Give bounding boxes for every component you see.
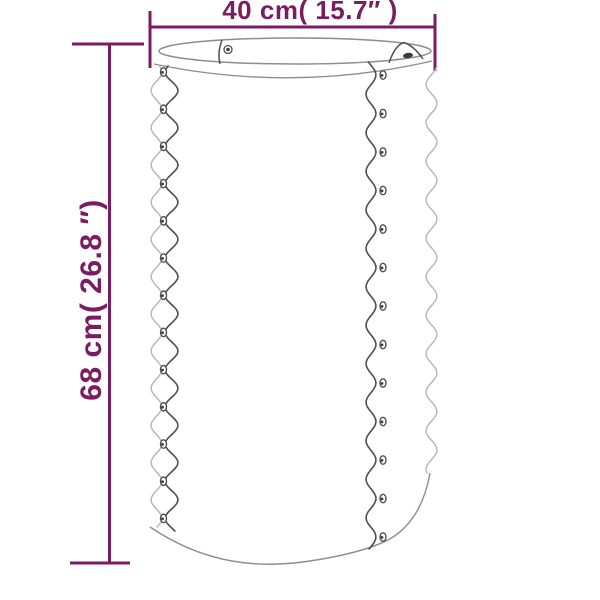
width-dimension-label: 40 cm( 15.7″ ) [222, 0, 398, 26]
left-seam-rivet-center [161, 406, 164, 409]
dimension-diagram: 40 cm( 15.7″ ) 68 cm( 26.8 ″) [0, 0, 600, 600]
left-seam-corrugation [165, 66, 178, 531]
right-seam-rivet-center [381, 113, 384, 116]
left-seam-rivet-center [161, 294, 164, 297]
left-seam-rivet-center [161, 369, 164, 372]
planter-rim-screw-left-center [226, 48, 230, 52]
planter-drawing [150, 38, 437, 564]
height-dimension-label: 68 cm( 26.8 ″) [75, 199, 109, 400]
right-seam-rivet-center [381, 382, 384, 385]
left-seam-rivet-center [161, 108, 164, 111]
right-outer-corrugation [426, 66, 437, 473]
planter-rivets [161, 68, 387, 541]
left-seam-rivet-center [161, 145, 164, 148]
left-seam-rivet-center [161, 183, 164, 186]
right-seam-corrugation [366, 62, 376, 549]
left-seam-rivet-center [161, 517, 164, 520]
right-seam-rivet-center [381, 151, 384, 154]
right-seam-rivet-center [381, 498, 384, 501]
right-seam-rivet-center [381, 74, 384, 77]
left-seam-rivet-center [161, 331, 164, 334]
right-seam-rivet-center [381, 267, 384, 270]
left-seam-rivet-center [161, 480, 164, 483]
left-seam-rivet-center [161, 220, 164, 223]
left-seam-rivet-center [161, 257, 164, 260]
dimension-lines [70, 11, 435, 563]
planter-bottom-edge [150, 473, 430, 564]
left-seam-rivet-center [161, 443, 164, 446]
right-seam-rivet-center [381, 459, 384, 462]
right-seam-rivet-center [381, 228, 384, 231]
right-seam-rivet-center [381, 344, 384, 347]
right-seam-rivet-center [381, 536, 384, 539]
planter-corrugated-edges [151, 62, 437, 549]
right-seam-rivet-center [381, 421, 384, 424]
left-seam-rivet-center [161, 71, 164, 74]
right-seam-rivet-center [381, 190, 384, 193]
right-seam-rivet-center [381, 305, 384, 308]
